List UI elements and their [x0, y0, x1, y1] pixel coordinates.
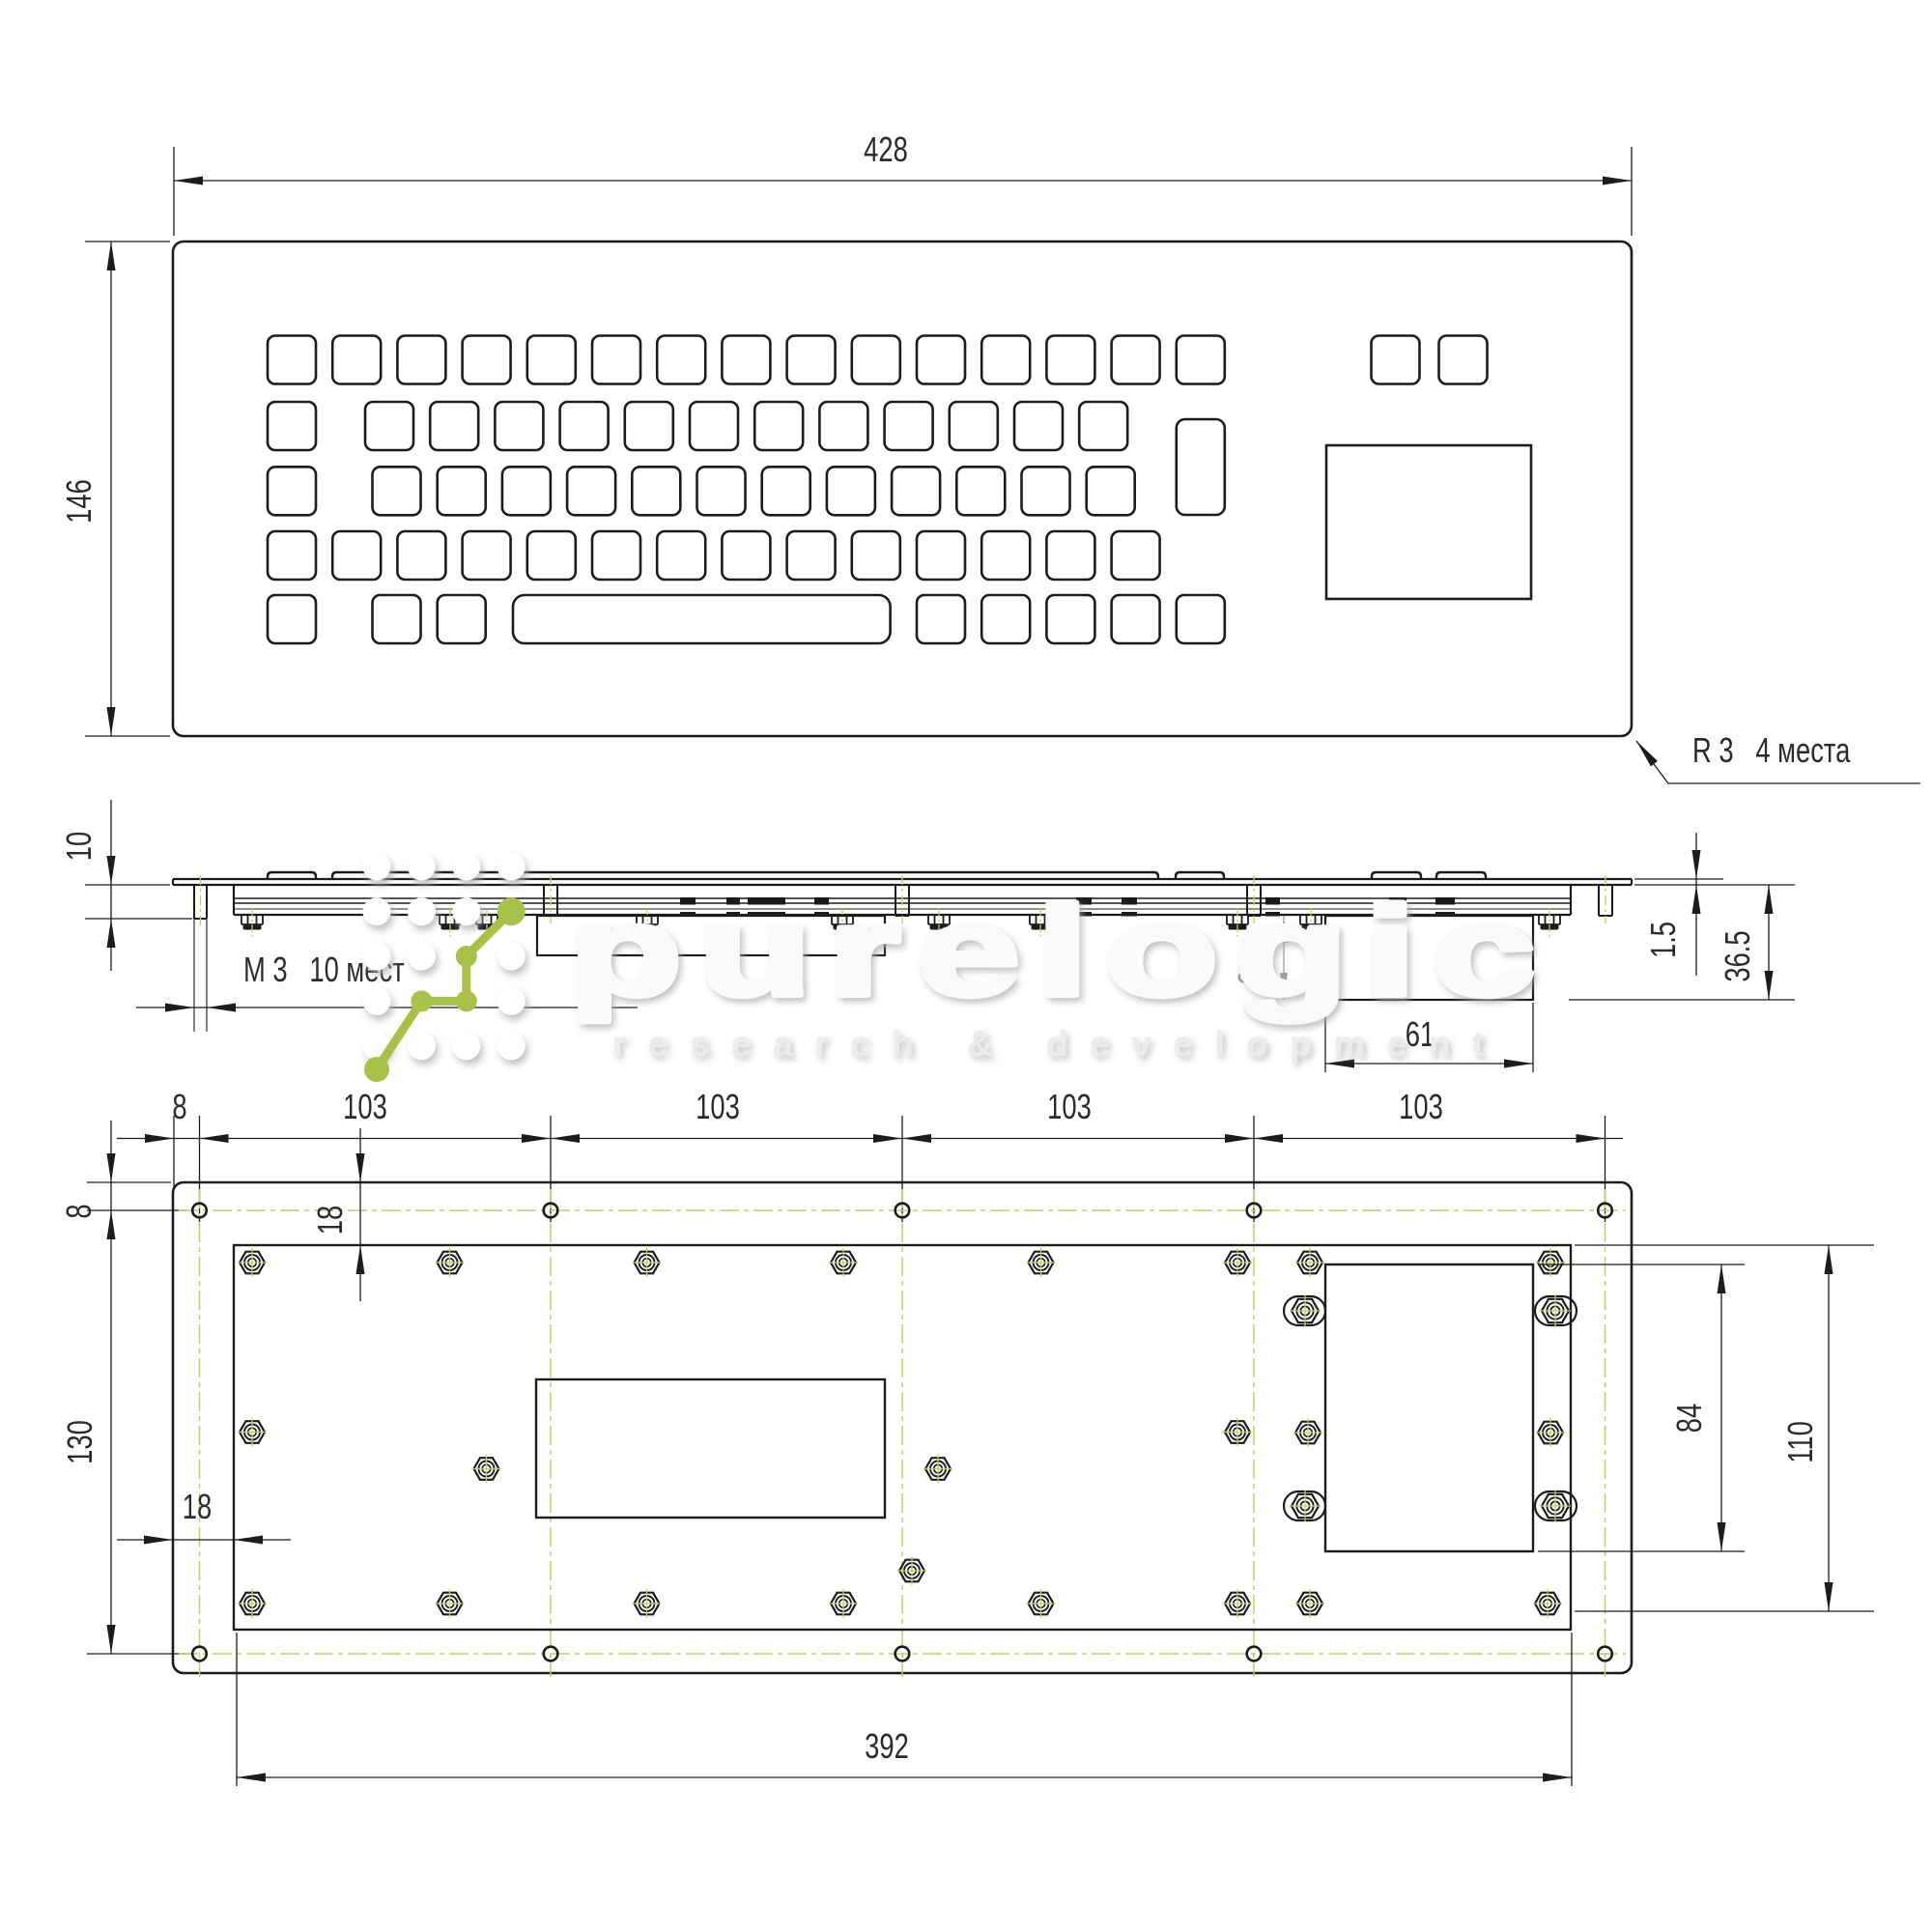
svg-text:110: 110 — [1780, 1421, 1820, 1463]
svg-text:84: 84 — [1669, 1404, 1709, 1433]
svg-text:103: 103 — [1047, 1087, 1092, 1126]
svg-text:18: 18 — [183, 1487, 212, 1526]
svg-text:428: 428 — [864, 129, 908, 169]
svg-text:8: 8 — [172, 1087, 186, 1126]
svg-text:R 3 4 места: R 3 4 места — [1692, 730, 1851, 770]
svg-text:392: 392 — [865, 1726, 909, 1766]
svg-text:research & development: research & development — [612, 1024, 1506, 1064]
svg-text:1.5: 1.5 — [1643, 922, 1683, 958]
svg-text:10: 10 — [59, 832, 99, 861]
svg-text:8: 8 — [59, 1204, 99, 1218]
svg-text:103: 103 — [696, 1087, 740, 1126]
svg-text:36.5: 36.5 — [1718, 930, 1757, 981]
svg-text:103: 103 — [343, 1087, 387, 1126]
svg-text:146: 146 — [59, 479, 99, 524]
svg-text:130: 130 — [60, 1420, 99, 1464]
svg-text:18: 18 — [310, 1206, 350, 1235]
svg-text:103: 103 — [1399, 1087, 1443, 1126]
svg-text:purelogic: purelogic — [569, 879, 1552, 1022]
